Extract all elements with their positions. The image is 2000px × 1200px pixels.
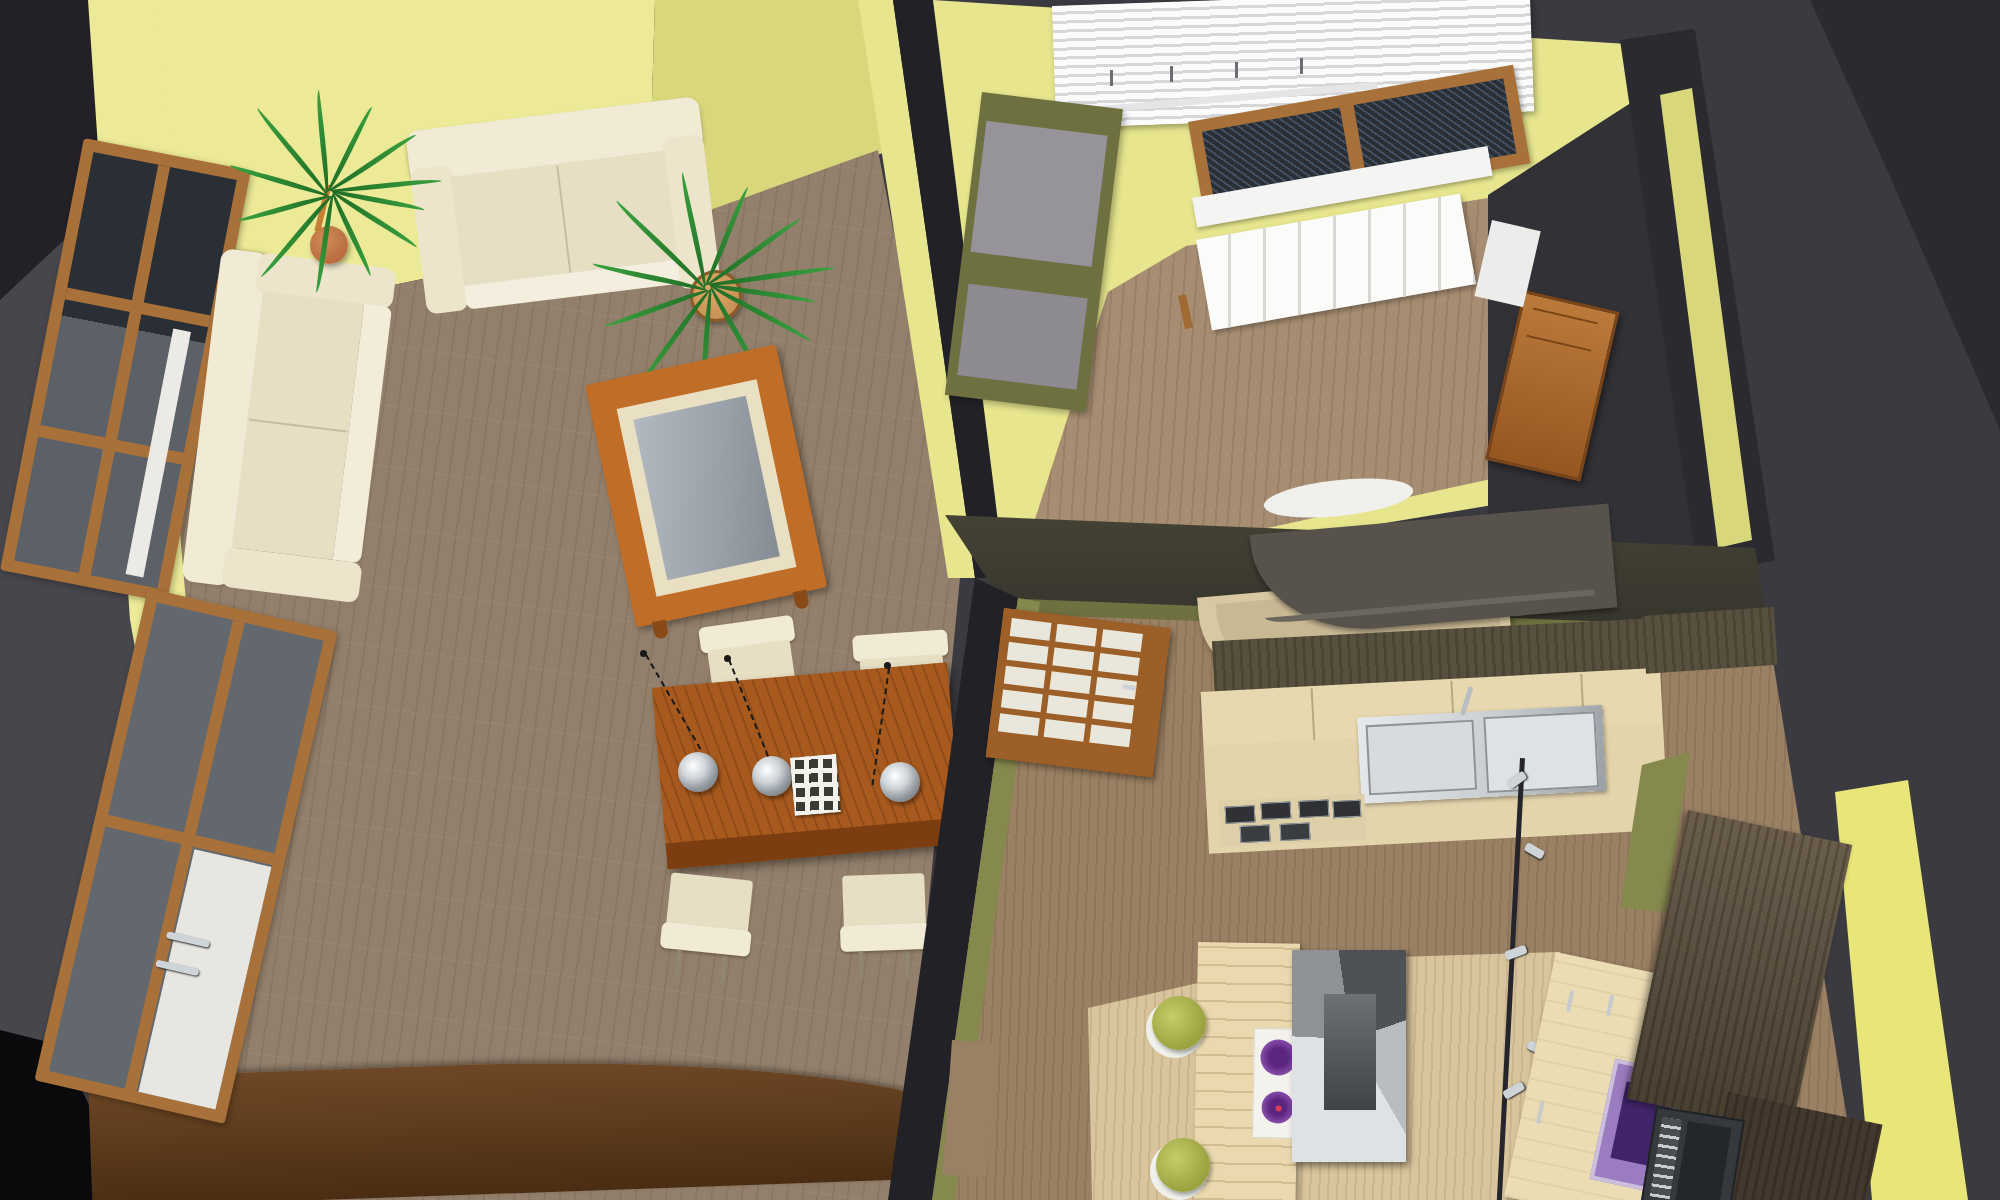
- sink-basin-left: [1366, 720, 1478, 796]
- blinds-hook-4: [1300, 58, 1303, 74]
- door-panel-line: [1533, 308, 1598, 325]
- coffee-table-leg-left: [652, 619, 669, 640]
- chair-leg-1: [859, 951, 864, 977]
- pendant-lamp-2: [752, 756, 792, 796]
- ceiling-mount-dot-1: [640, 650, 647, 657]
- ceiling-mount-dot-3: [884, 662, 891, 669]
- gray-unit-panel-1: [970, 121, 1107, 267]
- coffee-table-leg-right: [793, 589, 810, 610]
- kitchen-counter-run: [1198, 618, 1668, 854]
- cabinet-handle-1: [1566, 990, 1574, 1012]
- bar-stool-2: [1156, 1138, 1210, 1192]
- door-pane: [1047, 695, 1089, 718]
- hob-grate-6: [1280, 822, 1311, 841]
- sink-basin-right: [1483, 711, 1599, 793]
- blinds-hook-3: [1235, 62, 1238, 78]
- ceiling-mount-dot-2: [724, 655, 731, 662]
- door-pane: [1010, 618, 1052, 641]
- door-pane: [1089, 725, 1131, 748]
- doorway-gap: [943, 1040, 996, 1178]
- burner-indicator: [1276, 1105, 1282, 1111]
- hob-grate-5: [1240, 825, 1271, 844]
- extractor-hood: [1292, 950, 1406, 1162]
- gas-hob: [1218, 794, 1366, 848]
- door-pane: [1055, 624, 1097, 647]
- white-lattice-tray: [790, 754, 841, 816]
- apartment-render: [0, 0, 2000, 1200]
- chair-seat: [842, 873, 926, 930]
- bar-stool-1: [1152, 996, 1206, 1050]
- door-pane: [1004, 666, 1046, 689]
- glazed-door-grid: [998, 618, 1143, 747]
- blinds-hook-1: [1110, 70, 1113, 86]
- dining-chair-bottom-1: [659, 868, 758, 965]
- door-pane: [1049, 671, 1091, 694]
- dark-built-in-oven: [1640, 1106, 1745, 1200]
- double-sink: [1357, 705, 1606, 804]
- pendant-lamp-3: [880, 762, 920, 802]
- door-pane: [1052, 647, 1094, 670]
- oven-door-dark: [1676, 1121, 1732, 1200]
- door-pane: [998, 713, 1040, 736]
- dining-chair-bottom-2: [838, 869, 931, 960]
- blinds-hook-2: [1170, 66, 1173, 82]
- cabinet-handle-3: [1536, 1100, 1545, 1124]
- door-pane: [1092, 701, 1134, 724]
- gray-unit-panel-2: [957, 284, 1087, 390]
- chair-back: [840, 923, 931, 952]
- door-pane: [1007, 642, 1049, 665]
- door-pane: [1101, 629, 1143, 652]
- pendant-lamp-1: [678, 752, 718, 792]
- hob-grate-3: [1298, 799, 1329, 818]
- hob-grate-2: [1261, 801, 1292, 820]
- cabinet-handle-2: [1606, 994, 1614, 1016]
- hood-chimney: [1324, 994, 1376, 1110]
- sofa-long: [405, 96, 721, 321]
- chair-leg-2: [905, 952, 910, 978]
- door-panel-line: [1527, 335, 1592, 352]
- door-pane: [1001, 689, 1043, 712]
- kitchen-glazed-door: [986, 608, 1171, 777]
- door-pane: [1044, 719, 1086, 742]
- hob-grate-1: [1225, 805, 1256, 824]
- hob-grate-4: [1333, 800, 1362, 818]
- upper-cabinet-right-band: [1642, 607, 1778, 674]
- door-pane: [1098, 653, 1140, 676]
- plant-pot: [310, 226, 348, 264]
